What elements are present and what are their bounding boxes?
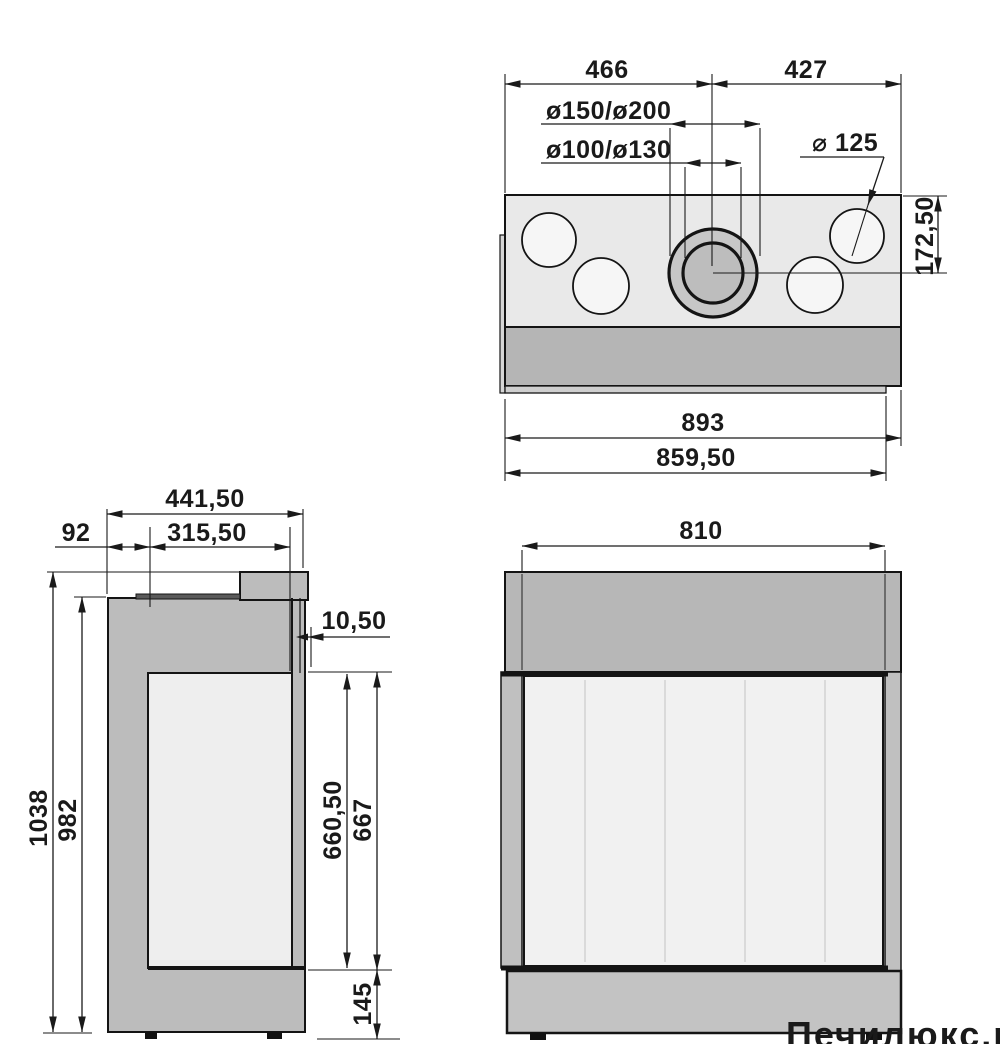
- dim-label-810: 810: [679, 517, 722, 545]
- side-view: 441,50 92 315,50 10,50 1038 982: [25, 485, 400, 1039]
- side-foot-rear: [145, 1032, 157, 1039]
- side-glass-panel: [148, 673, 292, 968]
- dim-label-hole-dia: ⌀ 125: [812, 129, 878, 157]
- front-right-side-strip: [885, 672, 901, 975]
- drawing-canvas: 466 427 ø150/ø200 ø100/ø130 ⌀ 125: [0, 0, 1000, 1044]
- dim-front-width: 810: [522, 517, 885, 571]
- dim-top-right: 427: [712, 56, 901, 84]
- dim-glass-heights: 660,50 667 145: [308, 672, 400, 1039]
- dim-pipe-inner: ø100/ø130: [541, 136, 741, 164]
- dim-front-lip: 10,50: [296, 607, 390, 667]
- side-foot-front: [267, 1032, 282, 1039]
- side-top-front-block: [240, 572, 308, 600]
- front-foot-left: [530, 1033, 546, 1040]
- dim-label-1038: 1038: [25, 789, 53, 847]
- dim-label-315-50: 315,50: [167, 519, 246, 547]
- front-top-band: [505, 572, 901, 672]
- dim-label-982: 982: [54, 798, 82, 841]
- dim-label-92: 92: [62, 519, 91, 547]
- dim-label-pipe-inner: ø100/ø130: [546, 136, 671, 164]
- dim-label-859-50: 859,50: [656, 444, 735, 472]
- dim-top-left: 466: [505, 56, 712, 84]
- dim-pipe-outer: ø150/ø200: [541, 97, 760, 125]
- dim-label-441-50: 441,50: [165, 485, 244, 513]
- dim-label-145: 145: [349, 982, 377, 1025]
- watermark: Печилюкс.ру: [786, 1014, 1000, 1044]
- front-glass: [524, 676, 883, 966]
- hole-left-lower: [573, 258, 629, 314]
- hole-right-lower: [787, 257, 843, 313]
- technical-drawing-page: 466 427 ø150/ø200 ø100/ø130 ⌀ 125: [0, 0, 1000, 1044]
- dim-label-466: 466: [585, 56, 628, 84]
- dim-label-172-50: 172,50: [911, 196, 939, 275]
- front-left-side-strip: [501, 672, 522, 968]
- dim-label-660-50: 660,50: [319, 780, 347, 859]
- top-view-front-band: [505, 327, 901, 386]
- dim-label-pipe-outer: ø150/ø200: [546, 97, 671, 125]
- side-top-plate: [136, 594, 240, 599]
- dim-label-10-50: 10,50: [321, 607, 386, 635]
- top-view-front-strip: [505, 386, 886, 393]
- hole-left-upper: [522, 213, 576, 267]
- front-view: 810: [501, 517, 901, 1040]
- dim-label-427: 427: [784, 56, 827, 84]
- dim-label-667: 667: [349, 798, 377, 841]
- dim-label-893: 893: [681, 409, 724, 437]
- hole-right-upper: [830, 209, 884, 263]
- top-view: 466 427 ø150/ø200 ø100/ø130 ⌀ 125: [500, 56, 947, 481]
